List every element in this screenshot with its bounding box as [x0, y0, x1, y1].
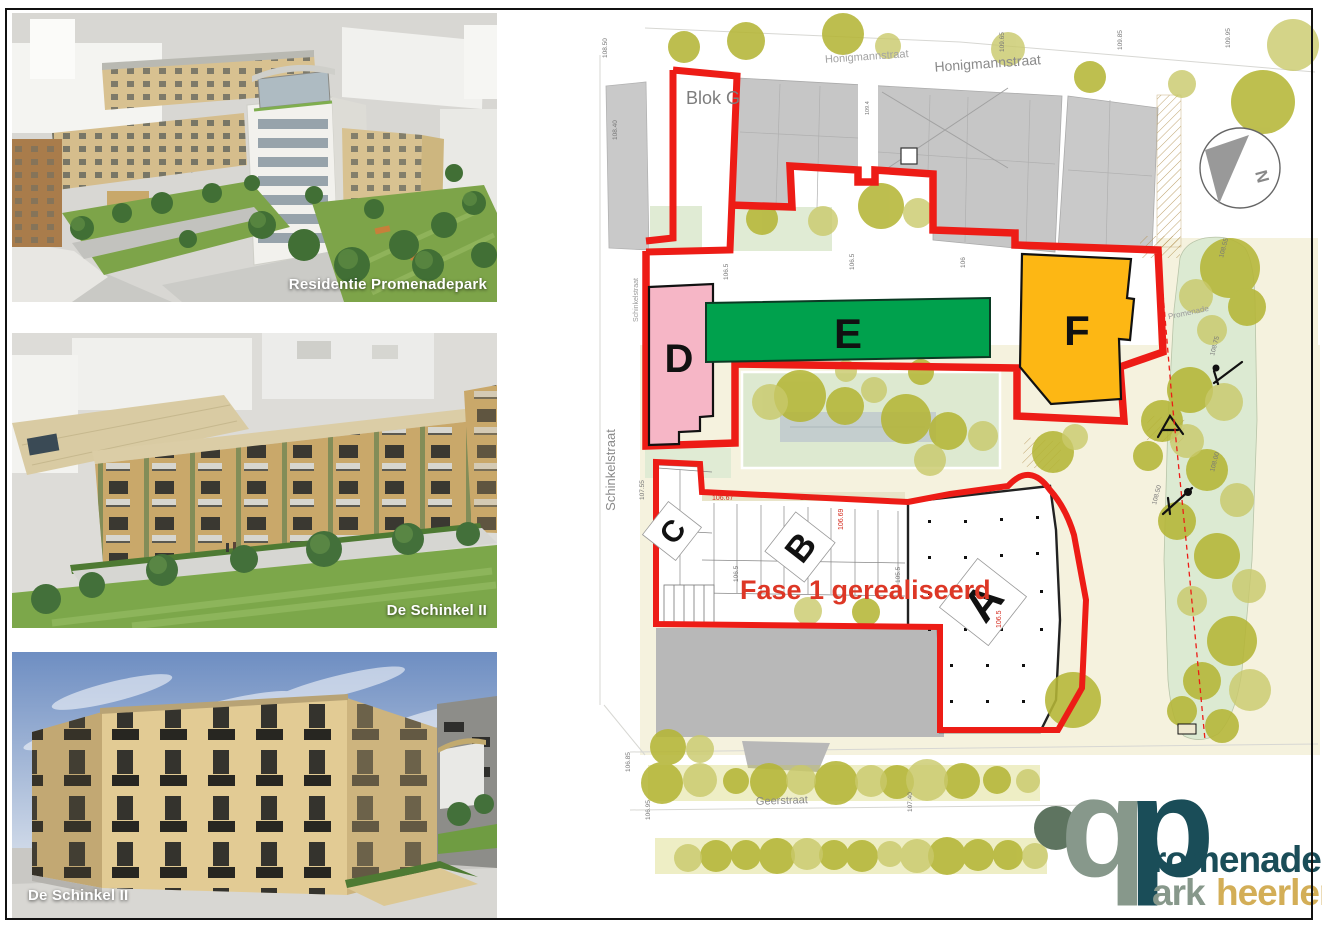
brochure-page: Residentie Promenadepark	[0, 0, 1322, 933]
render1-caption: Residentie Promenadepark	[289, 276, 487, 293]
render2-graphic	[12, 333, 497, 628]
area-label-blok-g: Blok G	[686, 88, 740, 108]
render-image-residentie-promenadepark: Residentie Promenadepark	[12, 13, 497, 302]
elevation-label-red: 106.67	[712, 495, 734, 502]
elevation-label-red: 106.67	[800, 495, 822, 502]
logo-word-park: ark	[1152, 872, 1206, 913]
elevation-label: 107.40	[907, 792, 914, 812]
elevation-label-red: 106.69	[838, 508, 845, 530]
render3-graphic	[12, 652, 497, 918]
promenade-park-logo: p p romenade ark heerlen	[1060, 748, 1322, 913]
render-image-de-schinkel-2-aerial: De Schinkel II	[12, 333, 497, 628]
elevation-label: 106.85	[625, 752, 632, 772]
block-d-letter: D	[665, 337, 694, 381]
elevation-label: 109.85	[1117, 30, 1124, 50]
elevation-label: 105.5	[895, 566, 902, 583]
elevation-label: 106.5	[723, 263, 730, 280]
street-label-geerstraat: Geerstraat	[756, 794, 808, 808]
render2-caption: De Schinkel II	[387, 602, 487, 619]
elevation-label: 106	[960, 257, 967, 268]
render-image-de-schinkel-2-street: De Schinkel II	[12, 652, 497, 918]
street-label-schinkelstraat: Schinkelstraat	[603, 429, 618, 511]
site-plan-svg: D E F C B A Hon	[530, 0, 1322, 933]
elevation-label: 106.5	[733, 565, 740, 582]
area-label-fase1: Fase 1 gerealiseerd	[740, 575, 991, 605]
elevation-label: 108.50	[602, 38, 609, 58]
elevation-label: 106.5	[849, 253, 856, 270]
elevation-label: 109.4	[865, 101, 871, 115]
block-f-letter: F	[1064, 307, 1090, 354]
street-label-honigmannstraat-right: Honigmannstraat	[934, 51, 1042, 74]
block-e-letter: E	[834, 310, 862, 357]
elevation-label: 106.95	[645, 800, 652, 820]
render3-caption: De Schinkel II	[28, 887, 128, 904]
elevation-label: 109.65	[999, 32, 1006, 52]
elevation-label: 109.95	[1225, 28, 1232, 48]
north-compass: N	[1200, 128, 1280, 208]
building-block-geerstraat	[656, 628, 944, 737]
elevation-label: 108.40	[612, 120, 619, 140]
site-plan-map: D E F C B A Hon	[530, 0, 1322, 933]
elevation-label-red: 106.5	[996, 610, 1003, 628]
street-label-schinkelstraat-small: Schinkelstraat	[633, 278, 640, 322]
elevation-label: 107.55	[639, 480, 646, 500]
render1-graphic	[12, 13, 497, 302]
logo-word-heerlen: heerlen	[1216, 872, 1322, 913]
